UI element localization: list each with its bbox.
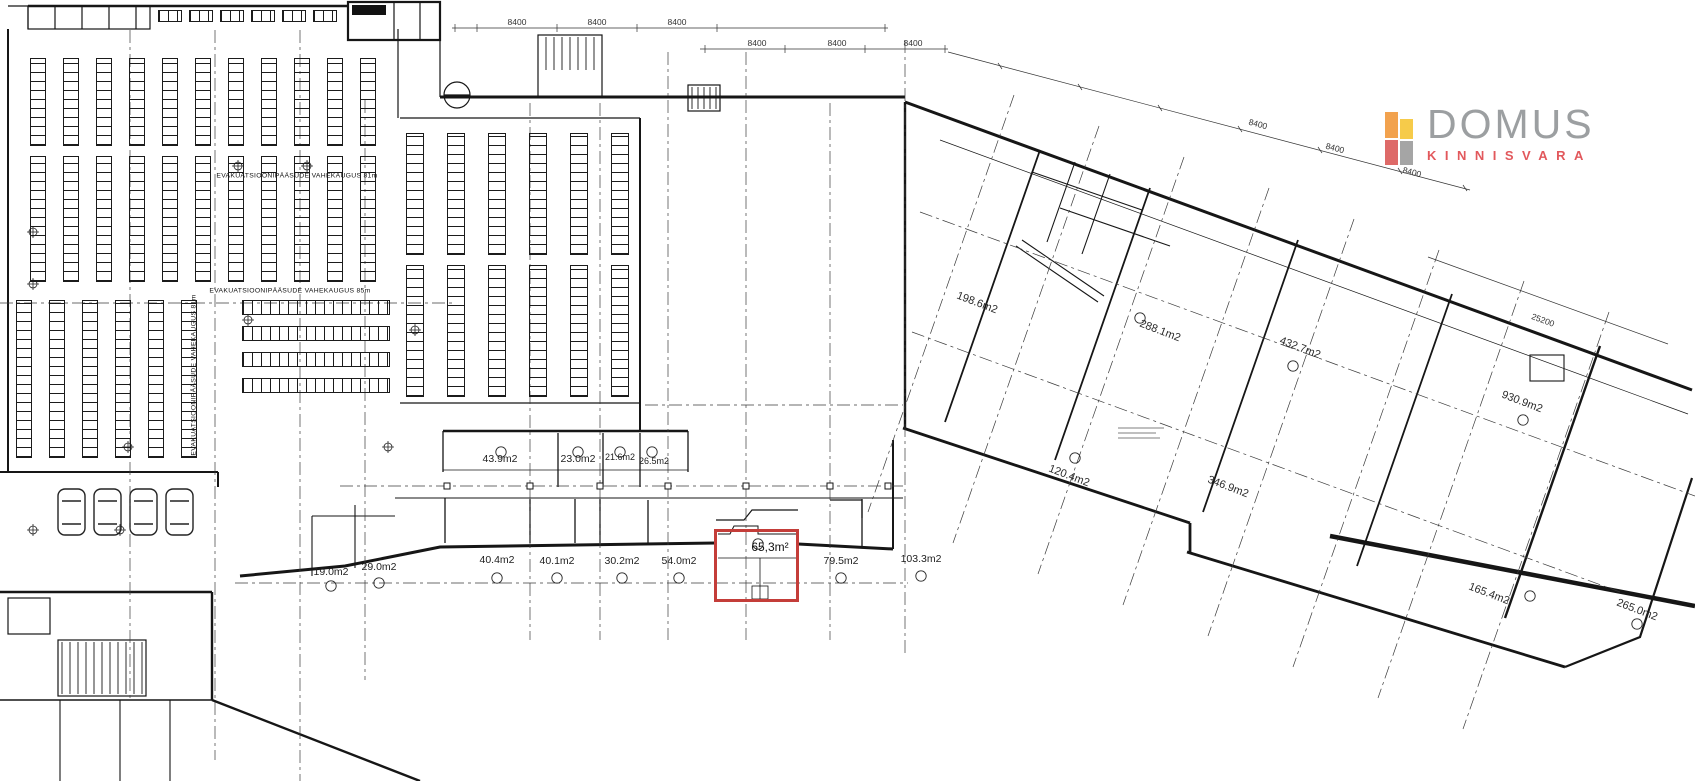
shelf-rack [611, 265, 629, 397]
room-tag-icon [916, 571, 926, 581]
shelf-rack [570, 265, 588, 397]
shelf-rack [488, 133, 506, 255]
grid-line [1293, 250, 1439, 667]
room-tag-icon [617, 573, 627, 583]
dim-label: 8400 [828, 38, 847, 48]
shelf-rack [529, 265, 547, 397]
tiny-note-lines [1118, 428, 1164, 438]
shelf-rack [294, 58, 310, 146]
shelf-rack [82, 300, 98, 458]
shelf-rack [611, 133, 629, 255]
shelf-rack [242, 352, 390, 367]
dim-label: 8400 [508, 17, 527, 27]
hatched-wall [1016, 240, 1104, 302]
area-label: 29.0m2 [361, 561, 396, 573]
shelf-rack [195, 58, 211, 146]
shelf-rack [162, 156, 178, 282]
evacuation-note: EVAKUATSIOONIPÄÄSUDE VAHEKAUGUS 81m [216, 173, 377, 180]
dim-label: 8400 [748, 38, 767, 48]
area-label: 26.5m2 [639, 456, 669, 466]
area-label: 40.4m2 [479, 554, 514, 566]
shelf-rack [570, 133, 588, 255]
grid-line [1378, 281, 1524, 698]
shelf-rack [488, 265, 506, 397]
room-tag-icon [674, 573, 684, 583]
shelf-rack [115, 300, 131, 458]
shelf-rack [242, 326, 390, 341]
area-label: 19.0m2 [313, 566, 348, 578]
dim-label: 8400 [668, 17, 687, 27]
shelf-rack [242, 378, 390, 393]
evacuation-note: EVAKUATSIOONIPÄÄSUDE VAHEKAUGUS 81m [191, 294, 198, 455]
shelf-rack [242, 300, 390, 315]
area-label: 79.5m2 [823, 555, 858, 567]
column-marker [827, 483, 833, 489]
logo-square-gray [1400, 141, 1413, 165]
grid-line [1038, 157, 1184, 574]
room-tag-icon [1518, 415, 1528, 425]
shelf-rack [251, 10, 275, 22]
area-label: 23.0m2 [560, 453, 595, 465]
bottom-left-annex [0, 592, 420, 781]
shelf-rack [189, 10, 213, 22]
column-plus-icon [27, 524, 39, 536]
shelf-rack [96, 58, 112, 146]
brand-name: DOMUS [1427, 103, 1595, 145]
grid-line [1208, 219, 1354, 636]
area-label: 54.0m2 [661, 555, 696, 567]
shelf-rack [63, 156, 79, 282]
shelf-rack [406, 133, 424, 255]
shelf-rack [148, 300, 164, 458]
column-plus-icon [382, 441, 394, 453]
column-marker [597, 483, 603, 489]
car-outline-icon [166, 489, 193, 535]
shelf-rack [162, 58, 178, 146]
area-label: 21.6m2 [605, 452, 635, 462]
evacuation-note: EVAKUATSIOONIPÄÄSUDE VAHEKAUGUS 85m [209, 288, 370, 295]
area-label: 30.2m2 [604, 555, 639, 567]
brand-tagline: KINNISVARA [1427, 148, 1595, 163]
shelf-rack [313, 10, 337, 22]
shelf-rack [220, 10, 244, 22]
grid-line [1463, 312, 1609, 729]
shelf-rack [30, 58, 46, 146]
column-marker [444, 483, 450, 489]
area-label: 43.9m2 [482, 453, 517, 465]
grid-line [1123, 188, 1269, 605]
logo-square-orange [1385, 112, 1398, 138]
room-tag-icon [1288, 361, 1298, 371]
shelf-rack [327, 58, 343, 146]
car-outline-icon [94, 489, 121, 535]
room-tag-icon [836, 573, 846, 583]
column-marker [885, 483, 891, 489]
shelf-rack [406, 265, 424, 397]
shelf-rack [529, 133, 547, 255]
shelf-rack [96, 156, 112, 282]
dim-label: 8400 [904, 38, 923, 48]
column-marker [665, 483, 671, 489]
car-display-area [58, 489, 193, 535]
car-outline-icon [130, 489, 157, 535]
right-wing-walls [903, 102, 1695, 667]
car-outline-icon [58, 489, 85, 535]
shelf-rack [49, 300, 65, 458]
shelf-rack [360, 58, 376, 146]
shelf-rack [447, 265, 465, 397]
shelf-rack [63, 58, 79, 146]
room-tag-icon [326, 581, 336, 591]
domus-logo-mark-icon [1385, 103, 1415, 165]
shelf-rack [447, 133, 465, 255]
dim-label: 8400 [588, 17, 607, 27]
domus-logo: DOMUS KINNISVARA [1385, 103, 1595, 165]
area-label: 103.3m2 [901, 553, 942, 565]
column-plus-icon [242, 314, 254, 326]
room-tag-icon [1525, 591, 1535, 601]
room-tag-icon [492, 573, 502, 583]
shelf-rack [30, 156, 46, 282]
highlighted-area-label: 65,3m² [751, 540, 788, 554]
room-tag-icon [1632, 619, 1642, 629]
floorplan-page: 43.9m2 23.0m2 21.6m2 26.5m2 19.0m2 29.0m… [0, 0, 1695, 781]
shelf-rack [261, 58, 277, 146]
shelf-rack [129, 58, 145, 146]
shelf-rack [195, 156, 211, 282]
area-label: 40.1m2 [539, 555, 574, 567]
room-tag-icon [552, 573, 562, 583]
shelf-rack [282, 10, 306, 22]
shelf-rack [158, 10, 182, 22]
column-marker [527, 483, 533, 489]
shelf-rack [129, 156, 145, 282]
logo-square-red [1385, 140, 1398, 165]
logo-text: DOMUS KINNISVARA [1427, 103, 1595, 163]
column-marker [743, 483, 749, 489]
shelf-rack [16, 300, 32, 458]
grid-line [912, 332, 1620, 592]
shelf-rack [228, 58, 244, 146]
logo-square-yellow [1400, 119, 1413, 139]
